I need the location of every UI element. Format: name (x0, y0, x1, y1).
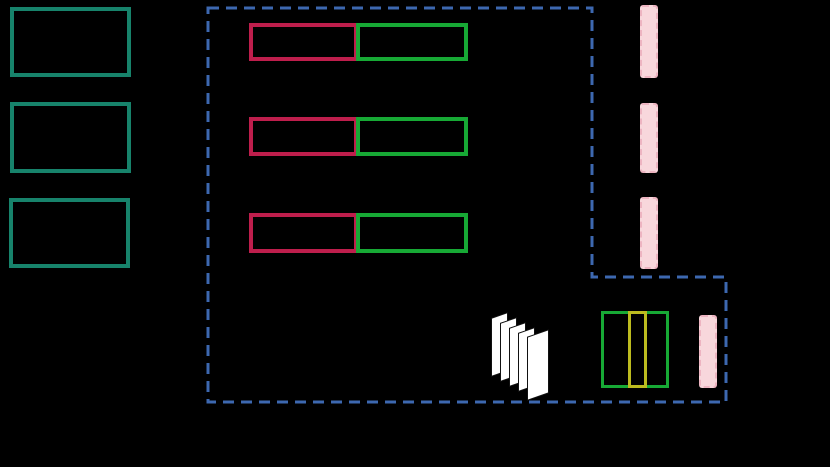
pink-scalloped-bar-1 (640, 5, 658, 78)
pair-row-2-red-box (249, 117, 358, 156)
partition-box-segment-yellow-mid (628, 311, 647, 388)
teal-outline-box-2 (10, 102, 131, 173)
pink-scalloped-bar-4 (699, 315, 717, 388)
pair-row-1-red-box (249, 23, 358, 61)
pair-row-3-green-box (356, 213, 468, 253)
pink-scalloped-bar-3 (640, 197, 658, 269)
partition-box-segment-green-left (601, 311, 631, 388)
partition-box-segment-green-right (644, 311, 669, 388)
diagram-canvas (0, 0, 830, 467)
pair-row-2-green-box (356, 117, 468, 156)
pages-stack-icon (492, 308, 550, 390)
pair-row-1-green-box (356, 23, 468, 61)
pink-scalloped-bar-2 (640, 103, 658, 173)
pair-row-3-red-box (249, 213, 358, 253)
page-sheet-icon (528, 331, 548, 400)
teal-outline-box-3 (9, 198, 130, 268)
teal-outline-box-1 (10, 7, 131, 77)
